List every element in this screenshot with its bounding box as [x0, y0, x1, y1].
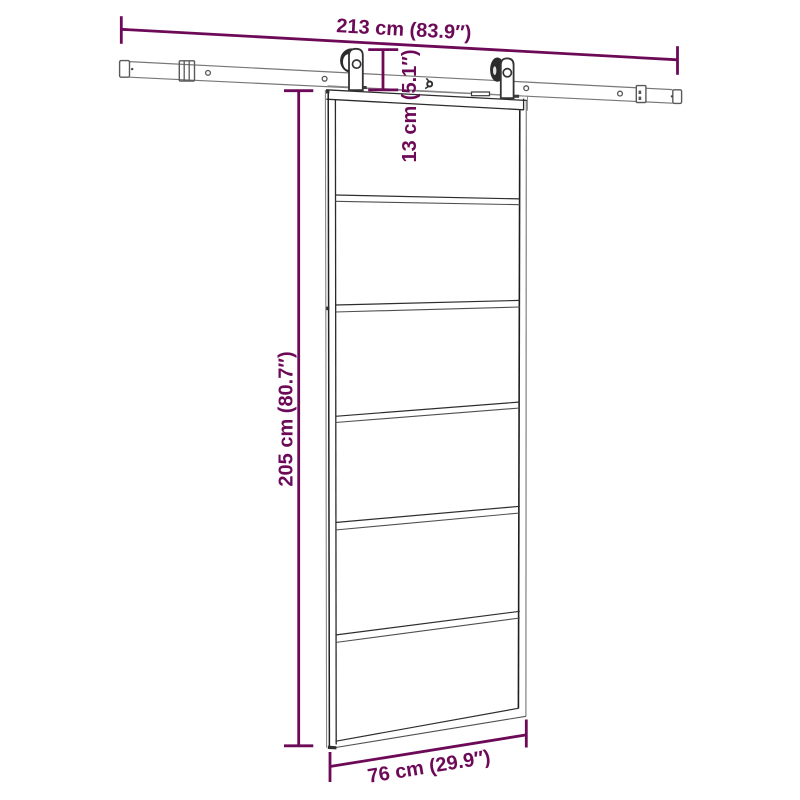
svg-text:205 cm (80.7″): 205 cm (80.7″): [275, 351, 297, 486]
svg-text:13 cm (5.1″): 13 cm (5.1″): [399, 50, 421, 163]
